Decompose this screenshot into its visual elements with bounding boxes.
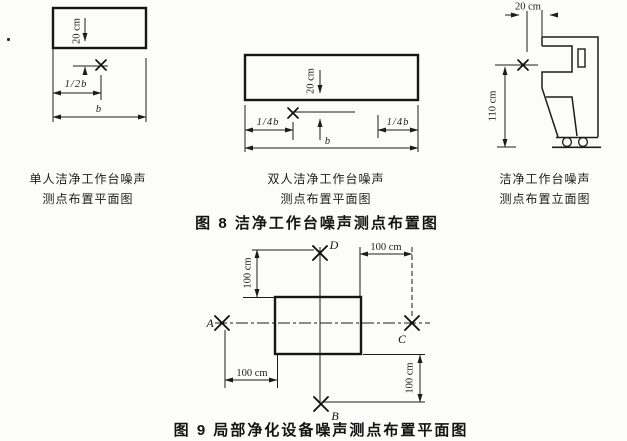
single-plan-caption-line1: 单人洁净工作台噪声 [28, 172, 148, 186]
dim-label-quarter-b-left: 1/4b [257, 117, 280, 128]
dim-label-b: b [96, 104, 102, 115]
local-purifier-plan: D 100 cm 100 cm C A 100 cm B [205, 238, 430, 423]
dim-label-quarter-b-right: 1/4b [387, 117, 410, 128]
dim-label-110cm: 110 cm [488, 91, 499, 122]
scanned-standard-figure-page: 20 cm 1/2b b 20 cm [0, 0, 627, 441]
double-plan-caption-line1: 双人洁净工作台噪声 [266, 172, 386, 186]
double-workbench-plan: 20 cm 1/4b 1/4b b [245, 55, 418, 152]
single-plan-caption-line2: 测点布置平面图 [28, 192, 148, 206]
dim-label-b: b [325, 136, 331, 147]
measurement-point-marker [96, 60, 106, 70]
workbench-side-profile [542, 37, 601, 147]
point-a-label: A [205, 316, 214, 330]
dim-label-100cm-top-left: 100 cm [243, 257, 254, 288]
point-c-label: C [398, 332, 407, 346]
single-workbench-plan: 20 cm 1/2b b [53, 8, 146, 122]
measurement-point-marker [288, 108, 298, 118]
point-d-label: D [329, 238, 339, 252]
caster-wheel-icon [579, 138, 588, 147]
caster-wheel-icon [563, 138, 572, 147]
figure9-caption: 图 9 局部净化设备噪声测点布置平面图 [171, 419, 471, 440]
figure8-caption: 图 8 洁净工作台噪声测点布置图 [167, 212, 467, 233]
double-plan-caption-line2: 测点布置平面图 [266, 192, 386, 206]
equipment-outline [275, 297, 361, 354]
workbench-elevation: 20 cm 110 cm [488, 2, 602, 148]
workbench-top-outline [245, 55, 418, 100]
dim-label-20cm: 20 cm [306, 68, 317, 94]
dim-label-20cm: 20 cm [72, 18, 83, 44]
dim-label-half-b: 1/2b [65, 79, 88, 90]
elevation-caption-line1: 洁净工作台噪声 [485, 172, 605, 186]
workbench-top-outline [53, 8, 146, 48]
elevation-caption-line2: 测点布置立面图 [485, 192, 605, 206]
point-b-marker [314, 397, 328, 411]
dim-label-100cm-bottom-left: 100 cm [236, 368, 267, 379]
dim-label-100cm-top-right: 100 cm [370, 242, 401, 253]
dim-label-100cm-bottom-right: 100 cm [405, 362, 416, 393]
dim-label-20cm: 20 cm [515, 2, 541, 13]
